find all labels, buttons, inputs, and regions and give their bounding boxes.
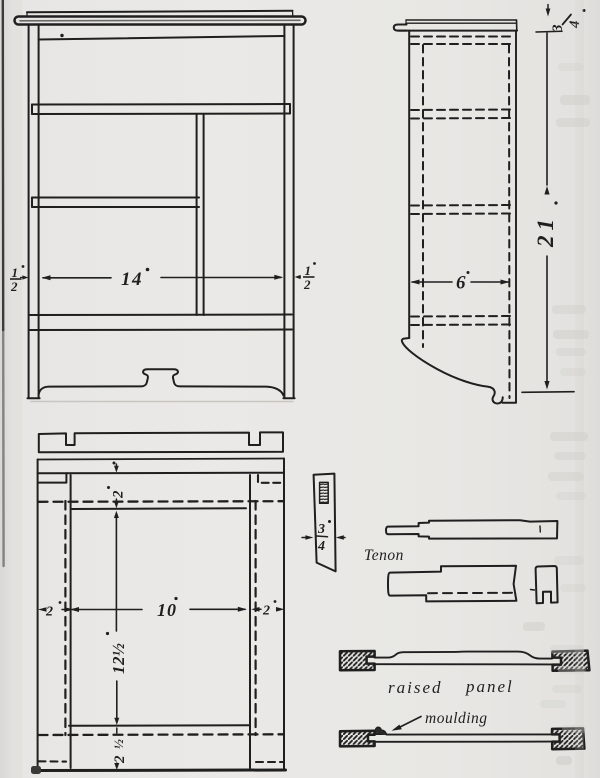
svg-text:12½: 12½ (109, 643, 128, 674)
svg-text:moulding: moulding (425, 710, 488, 727)
svg-text:3: 3 (550, 24, 566, 33)
svg-text:2: 2 (262, 604, 270, 619)
svg-text:4: 4 (317, 539, 325, 554)
svg-text:1: 1 (12, 265, 19, 280)
svg-text:21: 21 (533, 214, 558, 248)
svg-text:1: 1 (305, 263, 312, 278)
svg-text:Tenon: Tenon (364, 547, 404, 564)
svg-text:6: 6 (456, 273, 466, 294)
svg-text:2: 2 (111, 490, 127, 499)
svg-text:14: 14 (121, 269, 143, 290)
svg-text:10: 10 (157, 600, 177, 620)
svg-text:2: 2 (10, 279, 18, 294)
svg-text:2: 2 (303, 277, 311, 292)
svg-text:2: 2 (45, 605, 53, 620)
svg-text:panel: panel (465, 677, 514, 696)
svg-text:3: 3 (317, 522, 325, 537)
svg-text:½: ½ (111, 739, 126, 749)
svg-text:raised: raised (388, 678, 443, 697)
svg-text:2: 2 (112, 755, 128, 764)
